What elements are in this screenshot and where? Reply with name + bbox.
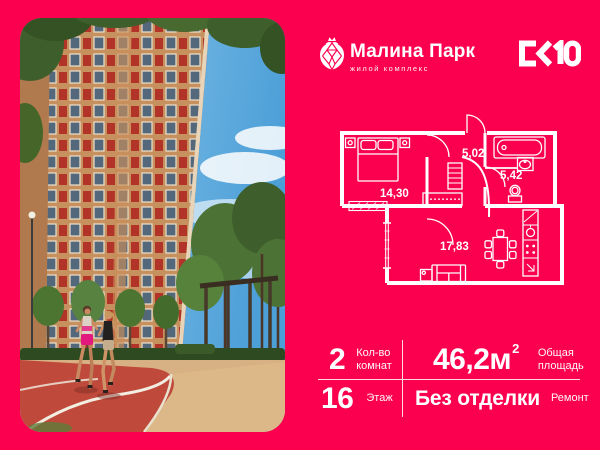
finish-label: Ремонт [551,392,589,405]
stat-finish: Без отделки Ремонт [403,380,580,417]
ck10-logo [517,40,581,67]
stat-floor: 16 Этаж [318,380,403,417]
complex-photo [20,18,285,432]
area-label: Общая площадь [538,347,584,372]
floor-value: 16 [321,384,353,414]
area-sup: 2 [512,341,519,356]
floor-plan: 14,30 5,02 5,42 17,83 [333,105,569,305]
floor-label: Этаж [366,392,392,405]
ground [20,360,285,432]
raspberry-crown-icon [317,36,347,70]
apartment-offer-card[interactable]: Малина Парк жилой комплекс [0,0,600,450]
brand-name: Малина Парк [350,42,475,61]
rooms-value: 2 [329,345,345,375]
plan-furniture [346,137,546,282]
area-value: 46,2м2 [433,345,519,375]
hall-area-label: 5,02 [462,148,484,160]
stat-rooms: 2 Кол-во комнат [318,340,403,380]
rooms-label: Кол-во комнат [356,347,392,372]
bedroom-area-label: 14,30 [380,188,409,200]
stat-area: 46,2м2 Общая площадь [403,340,580,380]
complex-photo-art [20,18,285,432]
bathroom-area-label: 5,42 [500,170,522,182]
apartment-stats: 2 Кол-во комнат 46,2м2 Общая площадь 16 … [318,340,580,417]
brand-subtitle: жилой комплекс [350,65,475,73]
finish-value: Без отделки [415,388,540,409]
brand-text: Малина Парк жилой комплекс [350,42,475,73]
living-area-label: 17,83 [440,241,469,253]
